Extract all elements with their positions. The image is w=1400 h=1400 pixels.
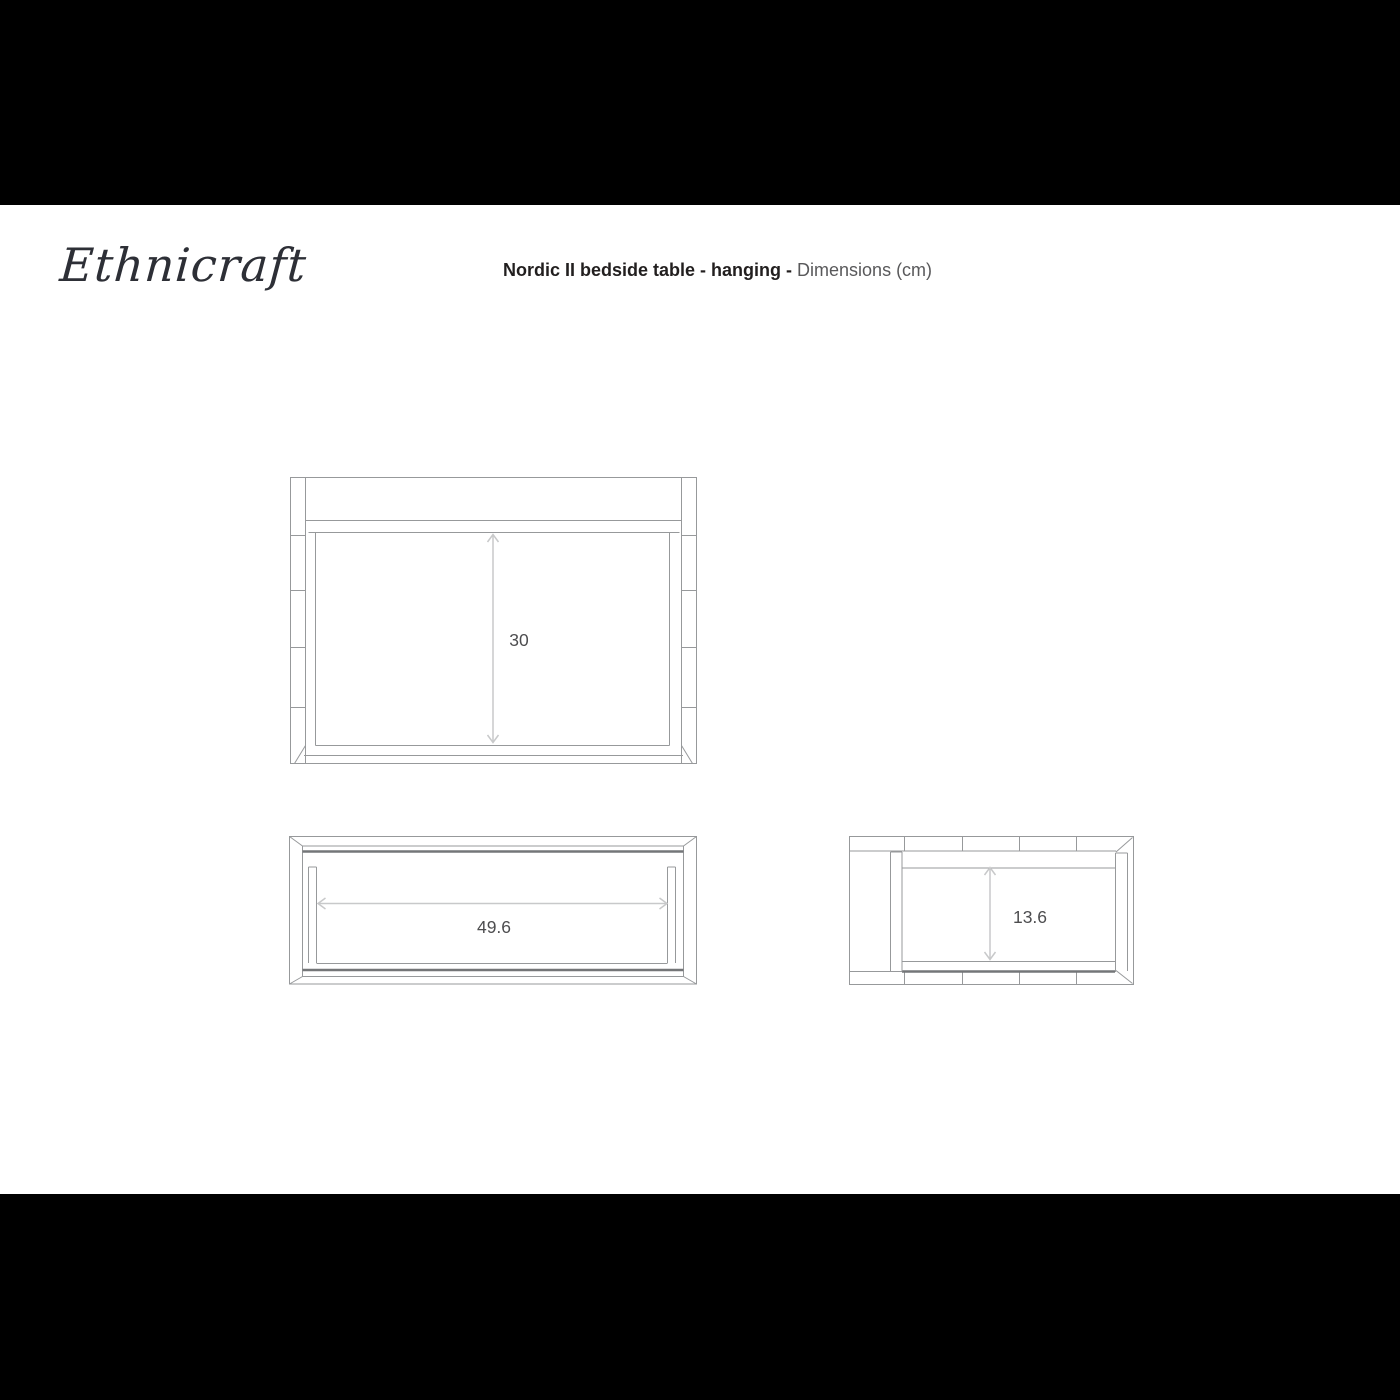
side-view-wall-cleat [891, 852, 903, 972]
front-height-dimension-arrow [488, 535, 499, 743]
top-width-dimension-arrow [318, 898, 667, 909]
dimension-sheet-page: Ethnicraft Nordic II bedside table - han… [0, 0, 1400, 1400]
front-right-side-panel [682, 478, 697, 764]
side-depth-value: 13.6 [1013, 907, 1047, 927]
technical-drawing-sheet: 30 [0, 0, 1400, 1400]
front-left-side-panel [291, 478, 306, 764]
top-view-right-cleat [668, 867, 676, 963]
side-depth-dimension-arrow [985, 868, 996, 960]
top-view-drawing [290, 837, 697, 985]
side-view-front-panel [1116, 853, 1128, 971]
top-width-value: 49.6 [477, 917, 511, 937]
front-height-value: 30 [509, 630, 529, 650]
side-view-drawing [850, 837, 1134, 985]
top-view-left-cleat [309, 867, 317, 963]
